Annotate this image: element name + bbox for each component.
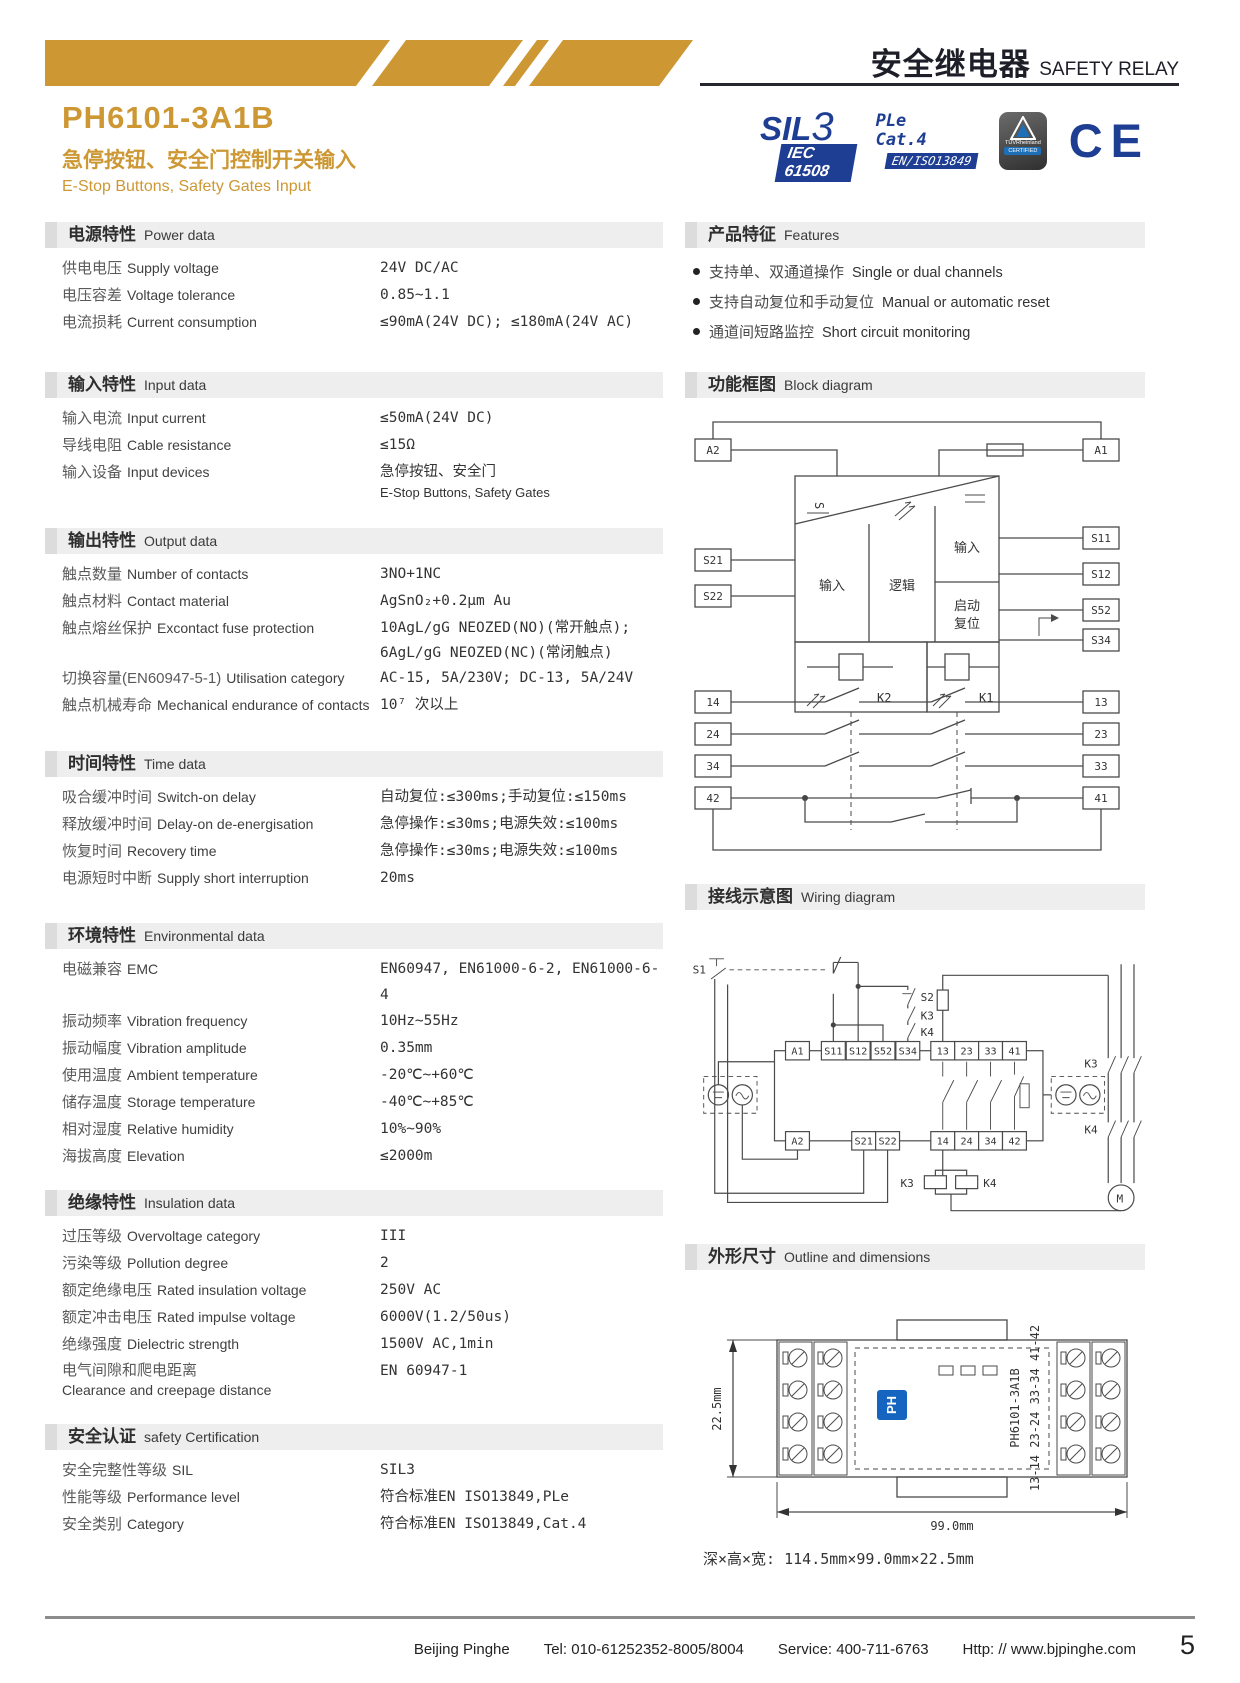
spec-value: 10Hz~55Hz <box>380 1008 663 1034</box>
feature-cn: 支持单、双通道操作 <box>709 264 844 281</box>
spec-label-cn: 电流损耗 <box>62 314 122 331</box>
feature-item: 支持自动复位和手动复位Manual or automatic reset <box>693 288 1145 318</box>
load-circuit: K3 K4 M <box>1084 964 1141 1210</box>
spec-label-cn: 海拔高度 <box>62 1148 122 1165</box>
block-input1-label: 输入 <box>819 578 845 593</box>
terminal-label: 24 <box>706 728 720 741</box>
right-power-source <box>1043 1076 1105 1113</box>
spec-label-cn: 额定绝缘电压 <box>62 1282 152 1299</box>
terminal-label: A1 <box>791 1046 803 1057</box>
terminal-label: S22 <box>878 1136 896 1147</box>
spec-value: 20ms <box>380 865 663 891</box>
terminal-label: 34 <box>984 1136 996 1147</box>
tuv-badge: TÜVRheinland CERTIFIED <box>999 112 1047 170</box>
feature-item: 支持单、双通道操作Single or dual channels <box>693 258 1145 288</box>
spec-label-cn: 输入设备 <box>62 464 122 481</box>
block-reset-label1: 启动 <box>954 598 980 613</box>
block-diagram: S 输入 逻辑 输入 启动 复位 <box>687 410 1127 870</box>
section-notch <box>685 372 697 398</box>
spec-label-cn: 吸合缓冲时间 <box>62 789 152 806</box>
spec-value: 10%~90% <box>380 1116 663 1142</box>
terminal-label: 14 <box>937 1136 949 1147</box>
page-number: 5 <box>1180 1630 1195 1661</box>
section-environment: 环境特性Environmental data 电磁兼容EMCEN60947, E… <box>45 923 663 1170</box>
brand-logo: PH <box>877 1390 907 1420</box>
spec-row: 输入电流Input current≤50mA(24V DC) <box>45 405 663 432</box>
spec-label-cn: 过压等级 <box>62 1228 122 1245</box>
section-header-power: 电源特性Power data <box>45 222 663 248</box>
block-left-terminals: A2 S21 S22 14 24 34 42 <box>695 439 731 809</box>
k3-coil-label: K3 <box>900 1177 913 1190</box>
spec-label-en: Dielectric strength <box>127 1336 239 1352</box>
bullet-icon <box>693 298 700 305</box>
spec-label-en: Voltage tolerance <box>127 287 235 303</box>
spec-value-line2: E-Stop Buttons, Safety Gates <box>380 485 663 501</box>
product-subtitle-cn: 急停按钮、安全门控制开关输入 <box>62 144 356 174</box>
spec-row: 导线电阻Cable resistance≤15Ω <box>45 432 663 459</box>
spec-label-cn: 供电电压 <box>62 260 122 277</box>
outline-drawing: 22.5mm <box>687 1282 1137 1534</box>
banner-title: 安全继电器 SAFETY RELAY <box>871 39 1179 84</box>
k4-coil-label: K4 <box>983 1177 997 1190</box>
spec-row: 电流损耗Current consumption≤90mA(24V DC); ≤1… <box>45 309 663 336</box>
spec-row: 触点材料Contact materialAgSnO₂+0.2μm Au <box>45 588 663 615</box>
ac-symbol-label: S <box>812 502 826 509</box>
spec-row: 恢复时间Recovery time急停操作:≤30ms;电源失效:≤100ms <box>45 838 663 865</box>
spec-label-cn: 电压容差 <box>62 287 122 304</box>
wiring-diagram: S1 S2 K3 K4 <box>687 922 1147 1230</box>
section-notch <box>45 372 57 398</box>
section-title-cn: 外形尺寸 <box>708 1247 776 1266</box>
spec-value: EN 60947-1 <box>380 1358 663 1384</box>
spec-label-cn: 触点数量 <box>62 566 122 583</box>
spec-row: 切换容量(EN60947-5-1)Utilisation categoryAC-… <box>45 665 663 692</box>
section-header-environment: 环境特性Environmental data <box>45 923 663 949</box>
left-power-source <box>704 1062 798 1159</box>
spec-value: 急停操作:≤30ms;电源失效:≤100ms <box>380 811 663 837</box>
feature-list: 支持单、双通道操作Single or dual channels 支持自动复位和… <box>685 258 1145 348</box>
section-header-wiring-diagram: 接线示意图Wiring diagram <box>685 884 1145 910</box>
height-dim-label: 22.5mm <box>710 1387 724 1430</box>
section-title-en: Output data <box>144 533 217 549</box>
section-title-en: Power data <box>144 227 215 243</box>
section-header-certification: 安全认证safety Certification <box>45 1424 663 1450</box>
k4-contact-label: K4 <box>1084 1123 1098 1136</box>
terminal-label: S12 <box>849 1046 867 1057</box>
spec-label-en: Contact material <box>127 593 229 609</box>
spec-label-cn: 释放缓冲时间 <box>62 816 152 833</box>
k4-label: K4 <box>921 1026 935 1039</box>
spec-label-en: Switch-on delay <box>157 789 256 805</box>
terminal-label: 24 <box>961 1136 973 1147</box>
spec-label-en: Supply voltage <box>127 260 219 276</box>
bullet-icon <box>693 328 700 335</box>
section-title-cn: 绝缘特性 <box>68 1193 136 1212</box>
terminal-label: S34 <box>899 1046 917 1057</box>
section-notch <box>685 222 697 248</box>
footer-website: Http: // www.bjpinghe.com <box>963 1641 1136 1658</box>
spec-label-cn: 导线电阻 <box>62 437 122 454</box>
spec-label-en: Number of contacts <box>127 566 248 582</box>
spec-label-cn: 输入电流 <box>62 410 122 427</box>
s1-label: S1 <box>693 963 706 976</box>
block-reset-label2: 复位 <box>954 616 980 631</box>
product-model: PH6101-3A1B <box>62 100 356 136</box>
spec-label-en: Vibration frequency <box>127 1013 247 1029</box>
terminal-screws <box>779 1342 1125 1475</box>
k3-label: K3 <box>921 1009 934 1022</box>
nc-contact-row <box>731 788 1083 822</box>
relay-k2-label: K2 <box>877 691 891 705</box>
spec-label-cn: 绝缘强度 <box>62 1336 122 1353</box>
spec-row: 相对湿度Relative humidity10%~90% <box>45 1116 663 1143</box>
spec-value: 10AgL/gG NEOZED(NO)(常开触点);6AgL/gG NEOZED… <box>380 615 663 665</box>
section-title-cn: 电源特性 <box>68 225 136 244</box>
width-dimension: 99.0mm <box>777 1482 1127 1533</box>
spec-row: 安全完整性等级SILSIL3 <box>45 1457 663 1484</box>
spec-label-cn: 安全类别 <box>62 1516 122 1533</box>
spec-label-cn: 储存温度 <box>62 1094 122 1111</box>
logo-text: PH <box>884 1396 899 1414</box>
spec-value: -40℃~+85℃ <box>380 1089 663 1115</box>
spec-row: 振动幅度Vibration amplitude0.35mm <box>45 1035 663 1062</box>
width-dim-label: 99.0mm <box>930 1519 973 1533</box>
spec-value: SIL3 <box>380 1457 663 1483</box>
spec-row: 电压容差Voltage tolerance0.85~1.1 <box>45 282 663 309</box>
section-title-en: Input data <box>144 377 206 393</box>
feature-en: Single or dual channels <box>852 265 1003 281</box>
spec-label-en: Excontact fuse protection <box>157 620 314 636</box>
spec-column: 电源特性Power data 供电电压Supply voltage24V DC/… <box>45 222 663 1538</box>
section-power: 电源特性Power data 供电电压Supply voltage24V DC/… <box>45 222 663 336</box>
sil-prefix: SIL <box>760 110 811 147</box>
spec-row: 电源短时中断Supply short interruption20ms <box>45 865 663 892</box>
terminal-label: 23 <box>1094 728 1107 741</box>
block-right-terminals: A1 S11 S12 S52 S34 13 23 33 41 <box>1083 439 1119 809</box>
spec-row: 振动频率Vibration frequency10Hz~55Hz <box>45 1008 663 1035</box>
section-title-en: Environmental data <box>144 928 265 944</box>
spec-label-cn: 使用温度 <box>62 1067 122 1084</box>
terminal-label: 42 <box>706 792 719 805</box>
dimensions-note: 深×高×宽: 114.5mm×99.0mm×22.5mm <box>703 1548 1145 1569</box>
spec-label-cn: 安全完整性等级 <box>62 1462 167 1479</box>
ce-mark: CE <box>1069 112 1150 170</box>
terminal-label: S52 <box>1091 604 1111 617</box>
section-title-en: Outline and dimensions <box>784 1249 930 1265</box>
terminal-label: 33 <box>984 1046 996 1057</box>
terminal-label: S11 <box>1091 532 1111 545</box>
section-title-cn: 环境特性 <box>68 926 136 945</box>
section-output: 输出特性Output data 触点数量Number of contacts3N… <box>45 528 663 719</box>
product-subtitle-en: E-Stop Buttons, Safety Gates Input <box>62 178 356 196</box>
section-notch <box>685 1244 697 1270</box>
section-notch <box>685 884 697 910</box>
spec-value: ≤15Ω <box>380 432 663 458</box>
no-contact-row <box>731 688 1083 766</box>
spec-label-en: Mechanical endurance of contacts <box>157 697 369 713</box>
spec-label-en: Clearance and creepage distance <box>62 1380 380 1400</box>
terminal-label: A2 <box>706 444 719 457</box>
section-certification: 安全认证safety Certification 安全完整性等级SILSIL3 … <box>45 1424 663 1538</box>
spec-value: -20℃~+60℃ <box>380 1062 663 1088</box>
tuv-name: TÜVRheinland <box>1005 140 1041 146</box>
spec-value: AC-15, 5A/230V; DC-13, 5A/24V <box>380 665 663 691</box>
section-insulation: 绝缘特性Insulation data 过压等级Overvoltage cate… <box>45 1190 663 1400</box>
section-header-input: 输入特性Input data <box>45 372 663 398</box>
spec-label-en: Rated insulation voltage <box>157 1282 306 1298</box>
s2-label: S2 <box>921 991 934 1004</box>
block-logic-label: 逻辑 <box>889 578 915 593</box>
footer-company: Beijing Pinghe <box>414 1641 510 1658</box>
spec-label-en: Delay-on de-energisation <box>157 816 313 832</box>
footer: Beijing Pinghe Tel: 010-61252352-8005/80… <box>45 1630 1195 1661</box>
section-notch <box>45 1190 57 1216</box>
spec-label-en: Relative humidity <box>127 1121 234 1137</box>
section-header-features: 产品特征Features <box>685 222 1145 248</box>
spec-value-line1: 10AgL/gG NEOZED(NO)(常开触点); <box>380 620 630 636</box>
spec-row: 输入设备Input devices急停按钮、安全门E-Stop Buttons,… <box>45 459 663 501</box>
footer-rule <box>45 1616 1195 1619</box>
footer-service: Service: 400-711-6763 <box>778 1641 929 1658</box>
section-title-en: safety Certification <box>144 1429 259 1445</box>
terminal-label: S11 <box>824 1046 842 1057</box>
section-header-output: 输出特性Output data <box>45 528 663 554</box>
spec-label-en: Recovery time <box>127 843 216 859</box>
wiring-top-terminals: A1 S11 S12 S52 S34 13 23 33 41 <box>786 1042 1027 1060</box>
spec-row: 绝缘强度Dielectric strength1500V AC,1min <box>45 1331 663 1358</box>
banner-title-cn: 安全继电器 <box>871 47 1031 82</box>
section-title-en: Block diagram <box>784 377 873 393</box>
spec-label-en: Overvoltage category <box>127 1228 260 1244</box>
spec-row: 过压等级Overvoltage categoryIII <box>45 1223 663 1250</box>
spec-label-en: Elevation <box>127 1148 185 1164</box>
spec-value: 24V DC/AC <box>380 255 663 281</box>
spec-value: III <box>380 1223 663 1249</box>
spec-value: 符合标准EN ISO13849,PLe <box>380 1484 663 1510</box>
spec-row: 额定冲击电压Rated impulse voltage6000V(1.2/50u… <box>45 1304 663 1331</box>
spec-row: 额定绝缘电压Rated insulation voltage250V AC <box>45 1277 663 1304</box>
terminal-label: S34 <box>1091 634 1111 647</box>
spec-label-en: Rated impulse voltage <box>157 1309 296 1325</box>
spec-value: 急停操作:≤30ms;电源失效:≤100ms <box>380 838 663 864</box>
spec-label-cn: 恢复时间 <box>62 843 122 860</box>
spec-label-en: SIL <box>172 1462 193 1478</box>
spec-row: 使用温度Ambient temperature-20℃~+60℃ <box>45 1062 663 1089</box>
spec-row: 性能等级Performance level符合标准EN ISO13849,PLe <box>45 1484 663 1511</box>
section-header-insulation: 绝缘特性Insulation data <box>45 1190 663 1216</box>
section-notch <box>45 528 57 554</box>
terminal-map-label: 13-14 23-24 33-34 41-42 <box>1028 1325 1042 1491</box>
spec-row: 储存温度Storage temperature-40℃~+85℃ <box>45 1089 663 1116</box>
footer-tel: Tel: 010-61252352-8005/8004 <box>544 1641 744 1658</box>
spec-label-en: EMC <box>127 961 158 977</box>
spec-value-line1: 急停按钮、安全门 <box>380 464 496 480</box>
section-notch <box>45 751 57 777</box>
terminal-label: S21 <box>703 554 723 567</box>
feature-en: Short circuit monitoring <box>822 325 970 341</box>
section-features: 产品特征Features 支持单、双通道操作Single or dual cha… <box>685 222 1145 348</box>
section-input: 输入特性Input data 输入电流Input current≤50mA(24… <box>45 372 663 501</box>
banner-gold-stripes <box>45 40 745 86</box>
sil-standard: IEC 61508 <box>775 144 857 182</box>
spec-row: 电气间隙和爬电距离Clearance and creepage distance… <box>45 1358 663 1400</box>
spec-value: 0.35mm <box>380 1035 663 1061</box>
datasheet-page: 安全继电器 SAFETY RELAY PH6101-3A1B 急停按钮、安全门控… <box>0 0 1240 1683</box>
spec-label-cn: 额定冲击电压 <box>62 1309 152 1326</box>
spec-value: 1500V AC,1min <box>380 1331 663 1357</box>
spec-value-line2: 6AgL/gG NEOZED(NC)(常闭触点) <box>380 641 663 665</box>
section-title-cn: 安全认证 <box>68 1427 136 1446</box>
spec-value: 10⁷ 次以上 <box>380 692 663 718</box>
section-header-time: 时间特性Time data <box>45 751 663 777</box>
spec-label-cn: 污染等级 <box>62 1255 122 1272</box>
feature-cn: 支持自动复位和手动复位 <box>709 294 874 311</box>
spec-label-cn: 触点机械寿命 <box>62 697 152 714</box>
section-header-block-diagram: 功能框图Block diagram <box>685 372 1145 398</box>
spec-value: 2 <box>380 1250 663 1276</box>
spec-label-en: Storage temperature <box>127 1094 255 1110</box>
spec-label-cn: 触点材料 <box>62 593 122 610</box>
pl-line2: Cat.4 <box>876 131 977 150</box>
section-outline: 外形尺寸Outline and dimensions 22.5mm <box>685 1244 1145 1569</box>
model-vertical-label: PH6101-3A1B <box>1008 1368 1022 1447</box>
section-title-cn: 输入特性 <box>68 375 136 394</box>
spec-row: 吸合缓冲时间Switch-on delay自动复位:≤300ms;手动复位:≤1… <box>45 784 663 811</box>
spec-row: 释放缓冲时间Delay-on de-energisation急停操作:≤30ms… <box>45 811 663 838</box>
pl-standard: EN/ISO13849 <box>884 153 978 169</box>
terminal-label: S12 <box>1091 568 1111 581</box>
spec-row: 触点数量Number of contacts3NO+1NC <box>45 561 663 588</box>
bullet-icon <box>693 268 700 275</box>
spec-label-cn: 电磁兼容 <box>62 961 122 978</box>
terminal-label: 33 <box>1094 760 1107 773</box>
contactor-coils: K3 K4 <box>900 1150 1121 1211</box>
spec-value: ≤2000m <box>380 1143 663 1169</box>
spec-value: ≤90mA(24V DC); ≤180mA(24V AC) <box>380 309 663 335</box>
spec-row: 供电电压Supply voltage24V DC/AC <box>45 255 663 282</box>
spec-value: AgSnO₂+0.2μm Au <box>380 588 663 614</box>
terminal-label: 13 <box>937 1046 949 1057</box>
height-dimension: 22.5mm <box>710 1340 777 1477</box>
spec-row: 触点熔丝保护Excontact fuse protection10AgL/gG … <box>45 615 663 665</box>
terminal-label: 41 <box>1094 792 1107 805</box>
spec-label-cn: 电气间隙和爬电距离 <box>62 1362 197 1379</box>
spec-value: 250V AC <box>380 1277 663 1303</box>
spec-label-en: Supply short interruption <box>157 870 309 886</box>
section-title-cn: 时间特性 <box>68 754 136 773</box>
section-notch <box>45 1424 57 1450</box>
section-title-en: Features <box>784 227 839 243</box>
pl-line1: PLe <box>876 112 977 131</box>
product-title-block: PH6101-3A1B 急停按钮、安全门控制开关输入 E-Stop Button… <box>62 100 356 196</box>
certification-badges: SIL3 IEC 61508 PLe Cat.4 EN/ISO13849 TÜV… <box>760 112 1150 182</box>
section-block-diagram: 功能框图Block diagram S 输入 <box>685 372 1145 870</box>
section-wiring-diagram: 接线示意图Wiring diagram S1 S2 <box>685 884 1145 1230</box>
feature-cn: 通道间短路监控 <box>709 324 814 341</box>
terminal-label: 14 <box>706 696 720 709</box>
terminal-label: S21 <box>855 1136 873 1147</box>
spec-value: 3NO+1NC <box>380 561 663 587</box>
spec-label-en: Performance level <box>127 1489 240 1505</box>
spec-label-en: Cable resistance <box>127 437 231 453</box>
tuv-certified-label: CERTIFIED <box>1004 147 1041 155</box>
section-title-cn: 产品特征 <box>708 225 776 244</box>
section-title-cn: 输出特性 <box>68 531 136 550</box>
diagram-column: 产品特征Features 支持单、双通道操作Single or dual cha… <box>685 222 1145 1569</box>
spec-label-cn: 性能等级 <box>62 1489 122 1506</box>
spec-row: 海拔高度Elevation≤2000m <box>45 1143 663 1170</box>
spec-label-cn: 电源短时中断 <box>62 870 152 887</box>
spec-row: 污染等级Pollution degree2 <box>45 1250 663 1277</box>
spec-value: 6000V(1.2/50us) <box>380 1304 663 1330</box>
feature-item: 通道间短路监控Short circuit monitoring <box>693 318 1145 348</box>
section-title-en: Wiring diagram <box>801 889 895 905</box>
spec-label-cn: 切换容量(EN60947-5-1) <box>62 670 221 687</box>
spec-label-en: Current consumption <box>127 314 257 330</box>
spec-label-en: Utilisation category <box>226 670 344 686</box>
section-time: 时间特性Time data 吸合缓冲时间Switch-on delay自动复位:… <box>45 751 663 892</box>
top-banner: 安全继电器 SAFETY RELAY <box>45 40 1195 86</box>
terminal-label: 23 <box>961 1046 973 1057</box>
spec-label-cn: 振动频率 <box>62 1013 122 1030</box>
spec-row: 电磁兼容EMCEN60947, EN61000-6-2, EN61000-6-4 <box>45 956 663 1008</box>
terminal-label: A1 <box>1094 444 1107 457</box>
led-windows <box>939 1366 997 1375</box>
spec-label-cn: 触点熔丝保护 <box>62 620 152 637</box>
spec-value: ≤50mA(24V DC) <box>380 405 663 431</box>
section-header-outline: 外形尺寸Outline and dimensions <box>685 1244 1145 1270</box>
terminal-label: 13 <box>1094 696 1107 709</box>
spec-label-en: Pollution degree <box>127 1255 228 1271</box>
terminal-label: 34 <box>706 760 720 773</box>
section-notch <box>45 923 57 949</box>
section-title-en: Insulation data <box>144 1195 235 1211</box>
section-notch <box>45 222 57 248</box>
section-title-cn: 功能框图 <box>708 375 776 394</box>
terminal-label: 41 <box>1008 1046 1020 1057</box>
feature-en: Manual or automatic reset <box>882 295 1050 311</box>
spec-label-cn: 振动幅度 <box>62 1040 122 1057</box>
spec-value: 符合标准EN ISO13849,Cat.4 <box>380 1511 663 1537</box>
spec-value: 0.85~1.1 <box>380 282 663 308</box>
terminal-label: S22 <box>703 590 723 603</box>
sil-badge: SIL3 IEC 61508 <box>760 112 854 182</box>
tuv-triangle-icon <box>1010 116 1036 140</box>
sil-badge-text: SIL3 <box>760 112 854 144</box>
spec-label-en: Category <box>127 1516 184 1532</box>
spec-label-cn: 相对湿度 <box>62 1121 122 1138</box>
banner-title-en: SAFETY RELAY <box>1039 59 1179 80</box>
section-title-en: Time data <box>144 756 206 772</box>
sil-level: 3 <box>811 105 833 149</box>
motor-label: M <box>1117 1192 1124 1205</box>
spec-value: 自动复位:≤300ms;手动复位:≤150ms <box>380 784 663 810</box>
terminal-label: 42 <box>1008 1136 1020 1147</box>
spec-label-en: Input devices <box>127 464 210 480</box>
spec-value: 急停按钮、安全门E-Stop Buttons, Safety Gates <box>380 459 663 501</box>
section-title-cn: 接线示意图 <box>708 887 793 906</box>
terminal-label: A2 <box>791 1136 803 1147</box>
spec-row: 安全类别Category符合标准EN ISO13849,Cat.4 <box>45 1511 663 1538</box>
spec-value: EN60947, EN61000-6-2, EN61000-6-4 <box>380 956 663 1008</box>
k3-contact-label: K3 <box>1084 1057 1097 1070</box>
spec-label-en: Input current <box>127 410 206 426</box>
spec-label-en: Vibration amplitude <box>127 1040 247 1056</box>
block-input2-label: 输入 <box>954 540 980 555</box>
relay-k1-label: K1 <box>979 691 993 705</box>
spec-label-en: Ambient temperature <box>127 1067 258 1083</box>
terminal-label: S52 <box>874 1046 892 1057</box>
